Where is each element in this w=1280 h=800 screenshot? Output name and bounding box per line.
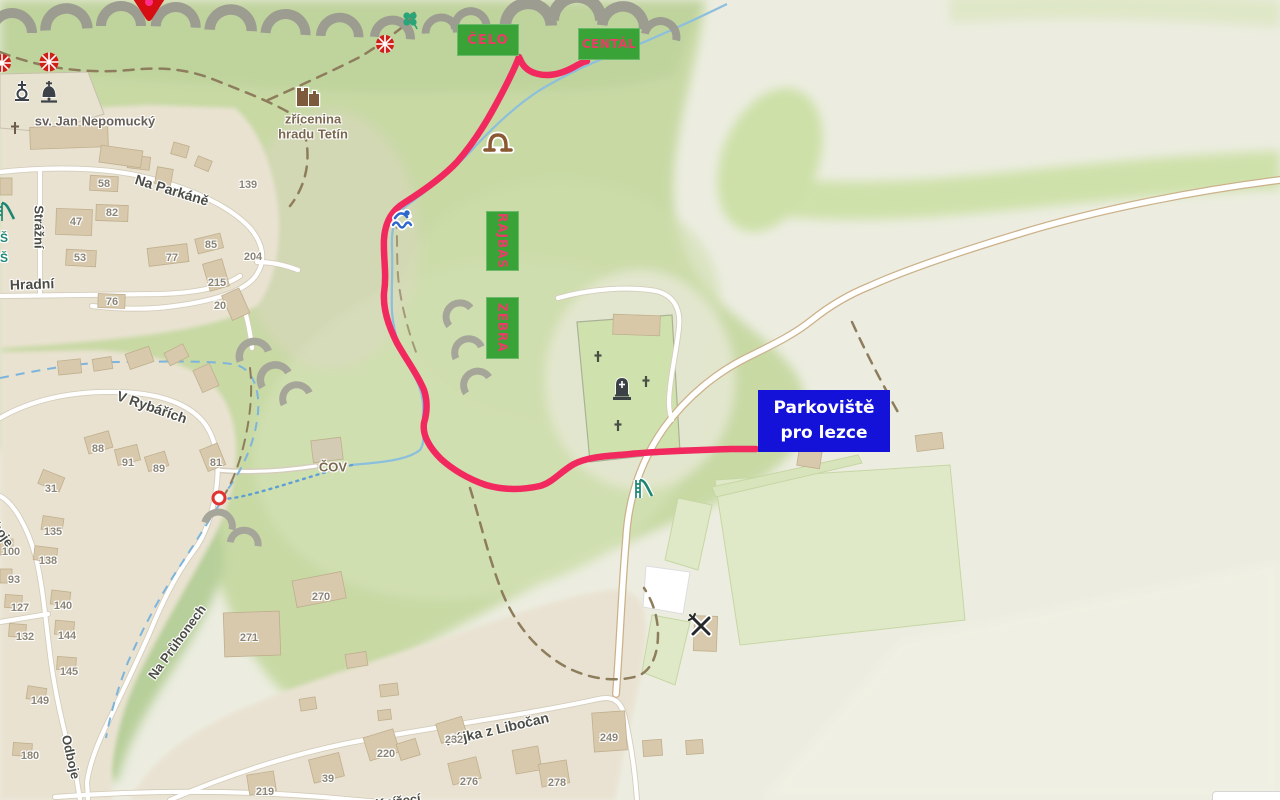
crag-label-rajbas: RAJBAS: [486, 211, 519, 271]
house-number-82: 82: [106, 207, 118, 219]
poi-label-castle-2[interactable]: hradu Tetín: [278, 127, 348, 142]
poi-label-cov[interactable]: ČOV: [319, 460, 347, 475]
house-number-204: 204: [244, 251, 262, 263]
parking-label-line1: Parkoviště: [773, 396, 874, 421]
house-number-20: 20: [214, 300, 226, 312]
house-number-127: 127: [11, 602, 29, 614]
house-number-276: 276: [460, 776, 478, 788]
house-number-138: 138: [39, 555, 57, 567]
house-number-39: 39: [322, 773, 334, 785]
house-number-58: 58: [98, 178, 110, 190]
street-label-hradni: Hradní: [10, 275, 55, 293]
house-number-132: 132: [16, 631, 34, 643]
house-number-88: 88: [92, 443, 104, 455]
house-number-85: 85: [205, 239, 217, 251]
house-number-249: 249: [600, 732, 618, 744]
house-number-215: 215: [208, 277, 226, 289]
house-number-145: 145: [60, 666, 78, 678]
map-widget-partial[interactable]: [1212, 791, 1280, 800]
house-number-139: 139: [239, 179, 257, 191]
house-number-149: 149: [31, 695, 49, 707]
poi-label-castle-1[interactable]: zřícenina: [285, 112, 341, 127]
house-number-232: 232: [445, 734, 463, 746]
house-number-220: 220: [377, 748, 395, 760]
house-number-53: 53: [74, 252, 86, 264]
parking-label: Parkoviště pro lezce: [758, 390, 890, 452]
house-number-31: 31: [45, 483, 57, 495]
house-number-91: 91: [122, 457, 134, 469]
house-number-270: 270: [312, 591, 330, 603]
castle-ruin-icon[interactable]: [297, 88, 319, 106]
crag-label-celo: ČELO: [457, 24, 519, 56]
house-number-93: 93: [8, 574, 20, 586]
crag-label-central: CENTÁL: [578, 28, 640, 60]
house-number-81: 81: [210, 457, 222, 469]
house-number-89: 89: [153, 463, 165, 475]
poi-label-school-partial-2: Š: [0, 251, 8, 265]
crag-label-zebra: ZEBRA: [486, 297, 519, 359]
house-number-47: 47: [70, 216, 82, 228]
poi-label-school-partial-1: Š: [0, 231, 8, 245]
map-canvas[interactable]: sv. Jan Nepomucký zřícenina hradu Tetín …: [0, 0, 1280, 800]
house-number-144: 144: [58, 630, 76, 642]
house-number-278: 278: [548, 777, 566, 789]
house-number-180: 180: [21, 750, 39, 762]
house-number-76: 76: [106, 296, 118, 308]
house-number-100: 100: [2, 546, 20, 558]
street-label-strazni: Strážní: [32, 205, 47, 248]
circle-marker-icon[interactable]: [213, 492, 225, 504]
terrain-layer: [0, 0, 1280, 800]
house-number-77: 77: [166, 252, 178, 264]
house-number-135: 135: [44, 526, 62, 538]
poi-label-church[interactable]: sv. Jan Nepomucký: [35, 114, 155, 129]
house-number-219: 219: [256, 786, 274, 798]
house-number-271: 271: [240, 632, 258, 644]
parking-label-line2: pro lezce: [773, 421, 874, 446]
house-number-140: 140: [54, 600, 72, 612]
